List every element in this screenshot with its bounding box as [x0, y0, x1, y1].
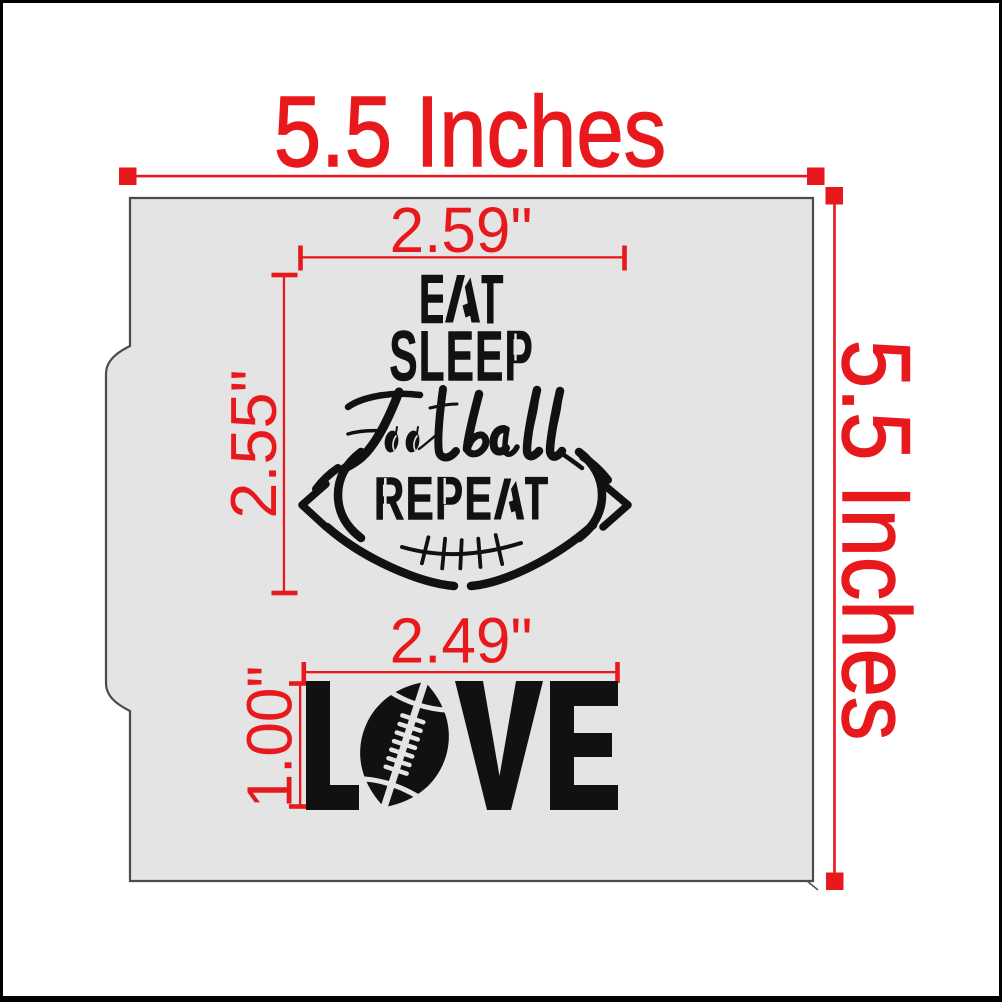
svg-text:5.5 Inches: 5.5 Inches [274, 75, 666, 187]
svg-text:1.00": 1.00" [235, 666, 306, 809]
svg-text:SLEEP: SLEEP [389, 317, 533, 396]
svg-text:5.5 Inches: 5.5 Inches [822, 340, 931, 741]
svg-text:2.59": 2.59" [390, 195, 533, 266]
svg-text:2.55": 2.55" [217, 369, 290, 518]
svg-text:2.49": 2.49" [390, 606, 533, 677]
